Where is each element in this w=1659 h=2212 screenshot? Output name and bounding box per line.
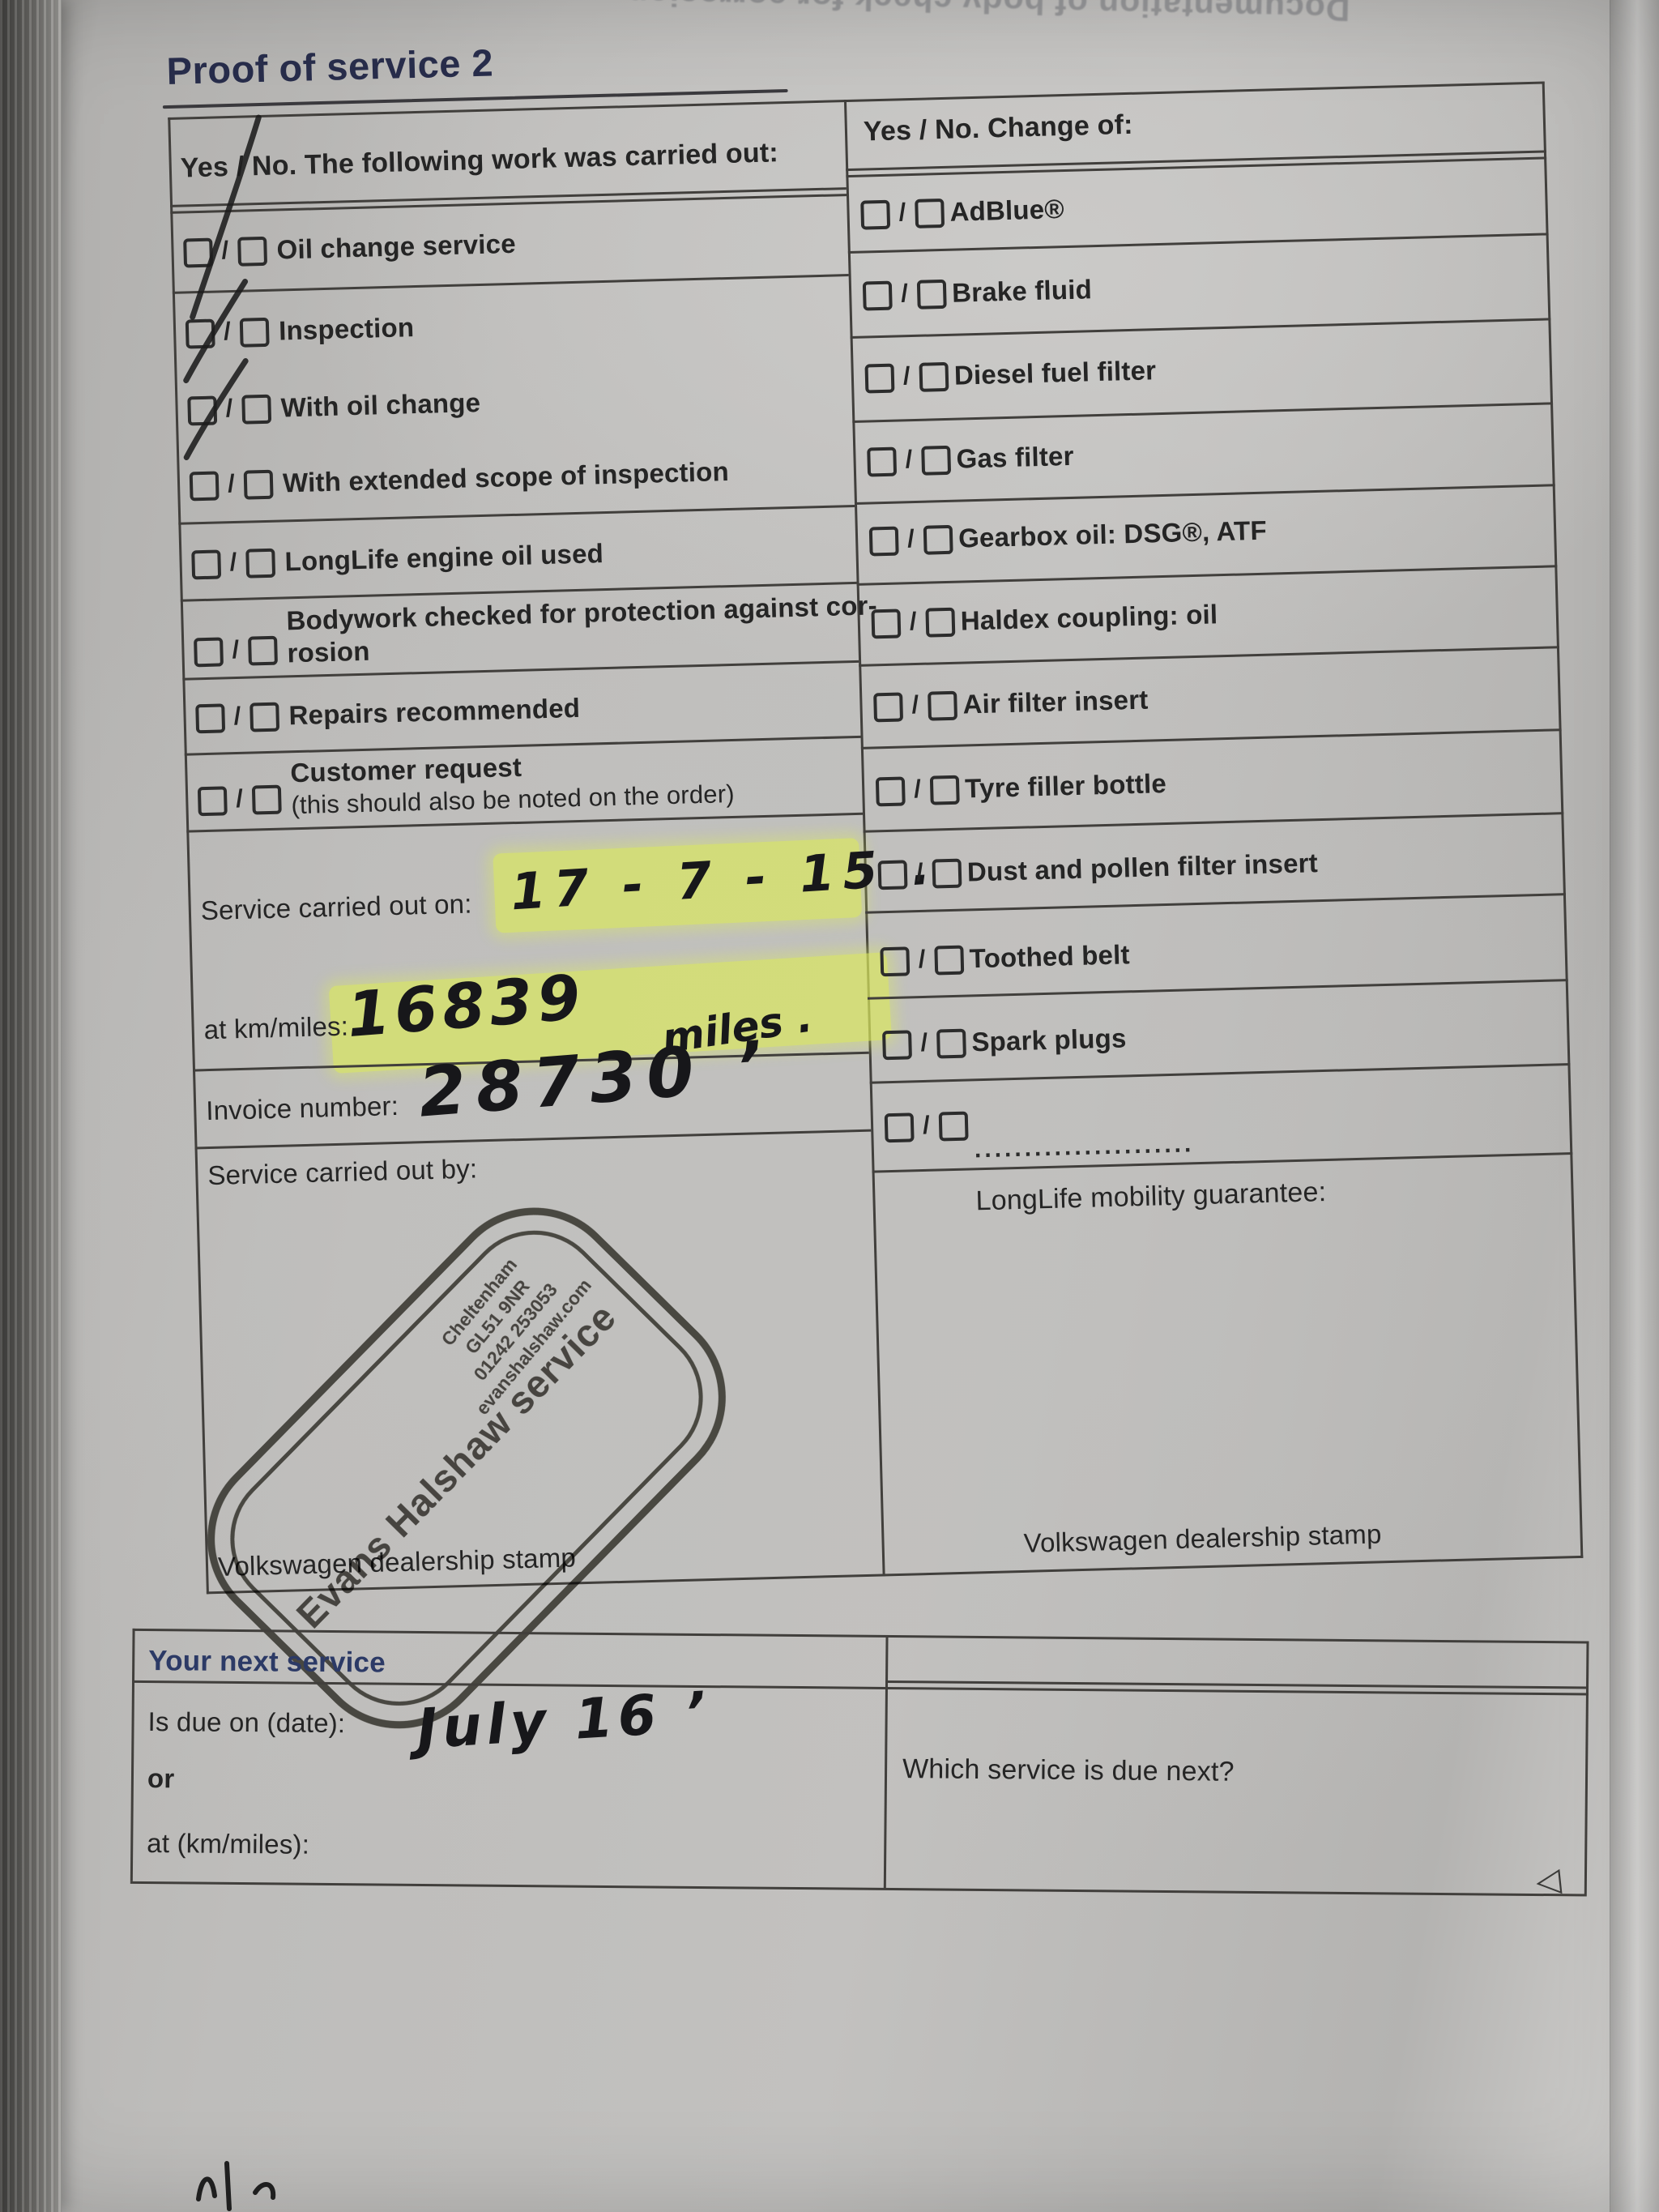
no-checkbox — [934, 946, 964, 976]
divider — [859, 646, 1559, 667]
no-checkbox — [925, 608, 955, 638]
divider — [868, 979, 1568, 1000]
carried-out-by-label: Service carried out by: — [207, 1152, 478, 1192]
divider — [865, 893, 1566, 914]
divider — [852, 402, 1553, 423]
yes-checkbox — [198, 786, 228, 816]
change-item-label: Brake fluid — [952, 273, 1093, 310]
checkbox-pair-air-filter: / — [873, 691, 957, 723]
checkbox-pair-gearbox-oil: / — [869, 525, 953, 557]
divider — [885, 1687, 1589, 1696]
checkbox-pair-blank: / — [885, 1112, 969, 1143]
yes-checkbox — [882, 1030, 912, 1060]
page-edge — [1610, 0, 1659, 2212]
checkbox-separator: / — [914, 775, 922, 804]
no-checkbox — [938, 1112, 968, 1142]
yes-checkbox — [878, 860, 908, 890]
work-item-label: LongLife engine oil used — [284, 537, 603, 578]
no-checkbox — [921, 446, 951, 476]
or-label: or — [147, 1762, 175, 1795]
next-service-box: Your next service Is due on (date): July… — [130, 1629, 1589, 1899]
checkbox-pair-longlife-oil: / — [191, 549, 275, 580]
divider — [851, 318, 1551, 339]
dealership-stamp-caption-right: Volkswagen dealership stamp — [1023, 1518, 1382, 1560]
table-border-right — [1542, 81, 1584, 1557]
proof-of-service-form: Proof of service 2 Yes / No. The followi… — [166, 12, 1594, 2009]
partial-handwriting-bottom-edge — [122, 2149, 446, 2212]
checkbox-separator: / — [898, 198, 906, 227]
change-item-label: Tyre filler bottle — [965, 767, 1167, 805]
yes-checkbox — [880, 946, 910, 976]
checkbox-separator: / — [905, 445, 913, 474]
checkbox-pair-pollen-filter: / — [878, 859, 962, 890]
no-checkbox — [928, 691, 957, 721]
checkbox-separator: / — [232, 635, 240, 664]
checkbox-pair-diesel-filter: / — [864, 362, 949, 394]
checkbox-separator: / — [901, 279, 909, 308]
no-checkbox — [915, 199, 945, 228]
change-item-label: Air filter insert — [962, 684, 1149, 721]
change-item-label: Gas filter — [956, 440, 1074, 476]
service-date-label: Service carried out on: — [200, 887, 472, 927]
yes-checkbox — [864, 364, 894, 394]
change-item-label: Gearbox oil: DSG®, ATF — [958, 515, 1268, 555]
divider — [884, 1635, 889, 1888]
which-service-label: Which service is due next? — [902, 1753, 1235, 1788]
no-checkbox — [245, 549, 275, 579]
yes-checkbox — [876, 776, 906, 806]
yes-checkbox — [194, 637, 224, 667]
invoice-label: Invoice number: — [206, 1090, 399, 1127]
yes-checkbox — [871, 609, 901, 639]
checkbox-separator: / — [911, 690, 919, 720]
divider — [130, 1629, 135, 1881]
divider — [182, 660, 859, 681]
checkbox-pair-spark-plugs: / — [882, 1029, 966, 1061]
km-label: at km/miles: — [203, 1010, 348, 1047]
no-checkbox — [923, 525, 953, 555]
yes-checkbox — [195, 703, 225, 733]
blank-item-dotted-line: ...................... — [974, 1130, 1194, 1164]
longlife-guarantee-caption: LongLife mobility guarantee: — [975, 1176, 1327, 1217]
divider — [185, 736, 861, 756]
yes-checkbox — [863, 281, 893, 311]
handwritten-tick-marks — [168, 93, 341, 519]
change-item-label: Dust and pollen filter insert — [966, 847, 1318, 888]
yes-checkbox — [191, 549, 221, 579]
change-item-label: Spark plugs — [971, 1022, 1127, 1058]
no-checkbox — [929, 775, 959, 805]
checkbox-separator: / — [233, 702, 241, 731]
due-date-handwriting: July 16 ’ — [416, 1680, 713, 1761]
next-km-label: at (km/miles): — [147, 1827, 309, 1861]
change-item-label: Toothed belt — [969, 938, 1130, 975]
divider — [132, 1680, 885, 1689]
checkbox-separator: / — [909, 607, 917, 636]
no-checkbox — [932, 859, 962, 889]
change-table-header: Yes / No. Change of: — [863, 109, 1133, 148]
checkbox-separator: / — [229, 548, 237, 577]
page-turn-arrow-icon: ◁ — [1534, 1861, 1563, 1901]
checkbox-separator: / — [907, 524, 915, 553]
change-item-label: AdBlue® — [949, 193, 1064, 228]
checkbox-separator: / — [236, 784, 244, 813]
book-spine — [0, 0, 62, 2212]
divider — [864, 812, 1564, 833]
checkbox-pair-tyre-bottle: / — [876, 775, 960, 807]
no-checkbox — [916, 280, 946, 310]
divider — [857, 565, 1558, 586]
divider — [194, 1129, 871, 1150]
service-book-page-photo: Documentation of body check for corrosio… — [0, 0, 1659, 2212]
yes-checkbox — [860, 200, 890, 230]
no-checkbox — [251, 785, 281, 815]
page-title: Proof of service 2 — [166, 40, 494, 93]
yes-checkbox — [869, 527, 899, 557]
due-date-label: Is due on (date): — [147, 1706, 345, 1740]
divider — [1584, 1642, 1589, 1894]
checkbox-pair-brake-fluid: / — [863, 280, 947, 311]
change-item-label: Haldex coupling: oil — [960, 598, 1218, 637]
no-checkbox — [248, 636, 278, 666]
checkbox-pair-repairs: / — [195, 702, 279, 734]
checkbox-pair-toothed-belt: / — [880, 946, 964, 977]
no-checkbox — [249, 702, 279, 732]
yes-checkbox — [867, 447, 897, 477]
checkbox-separator: / — [915, 858, 923, 887]
no-checkbox — [919, 362, 949, 392]
checkbox-separator: / — [920, 1028, 928, 1057]
divider — [870, 1063, 1571, 1084]
no-checkbox — [936, 1029, 966, 1059]
work-item-label: With extended scope of inspection — [283, 455, 730, 499]
divider — [848, 233, 1549, 254]
checkbox-pair-customer-request: / — [198, 785, 282, 817]
checkbox-separator: / — [918, 945, 926, 974]
change-item-label: Diesel fuel filter — [953, 354, 1156, 392]
next-service-title: Your next service — [148, 1645, 386, 1680]
divider — [861, 728, 1562, 749]
checkbox-pair-haldex: / — [871, 608, 955, 639]
checkbox-separator: / — [923, 1111, 931, 1140]
checkbox-separator: / — [902, 361, 911, 391]
yes-checkbox — [873, 692, 903, 722]
yes-checkbox — [885, 1112, 915, 1142]
work-item-label-line2: rosion — [287, 635, 370, 670]
checkbox-pair-adblue: / — [860, 199, 945, 230]
work-item-label: Repairs recommended — [288, 692, 581, 732]
divider — [130, 1881, 1587, 1897]
divider — [133, 1629, 1589, 1644]
checkbox-pair-gas-filter: / — [867, 446, 951, 477]
checkbox-pair-bodywork: / — [194, 636, 278, 668]
divider — [855, 484, 1555, 505]
